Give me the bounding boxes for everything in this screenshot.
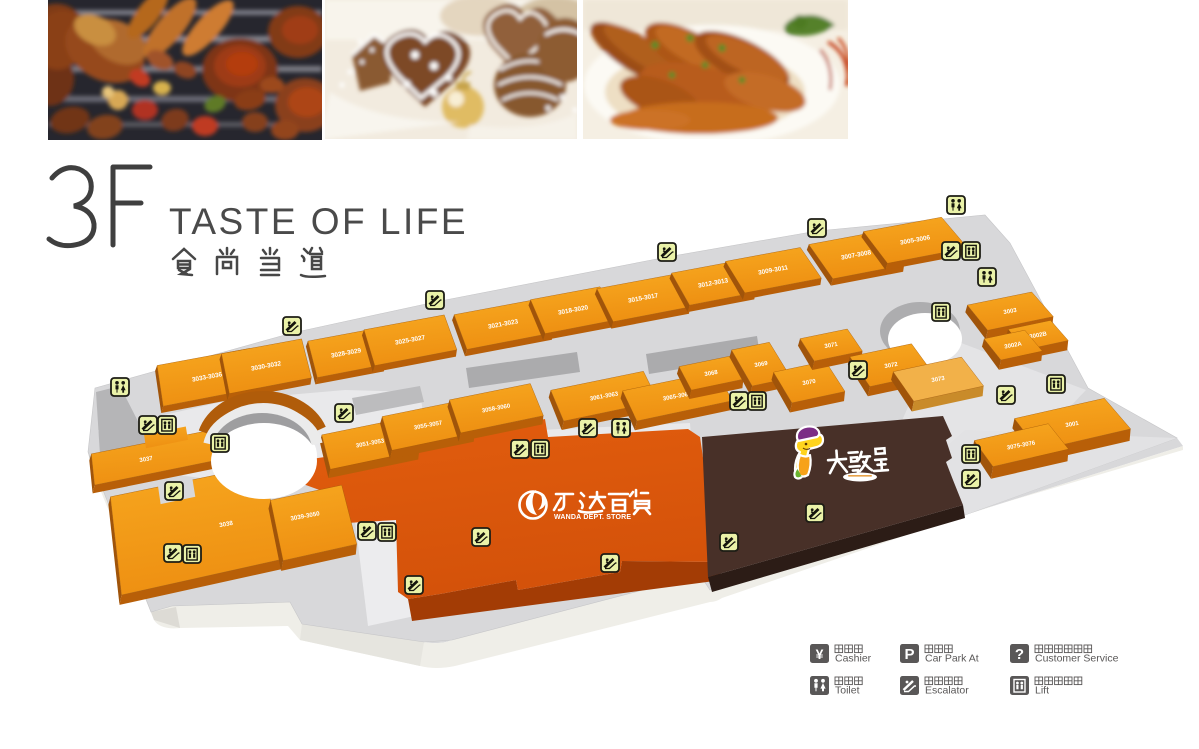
svg-text:P: P [904,646,914,663]
svg-text:Lift: Lift [1035,685,1049,697]
svg-text:Toilet: Toilet [835,685,860,697]
svg-text:Customer Service: Customer Service [1035,653,1119,665]
svg-text:TASTE OF LIFE: TASTE OF LIFE [169,201,468,242]
svg-text:WANDA DEPT. STORE: WANDA DEPT. STORE [554,514,631,521]
svg-text:¥: ¥ [816,646,824,662]
svg-text:Car Park At: Car Park At [925,653,979,665]
svg-text:Escalator: Escalator [925,685,969,697]
svg-text:Cashier: Cashier [835,653,872,665]
svg-text:?: ? [1015,646,1024,663]
